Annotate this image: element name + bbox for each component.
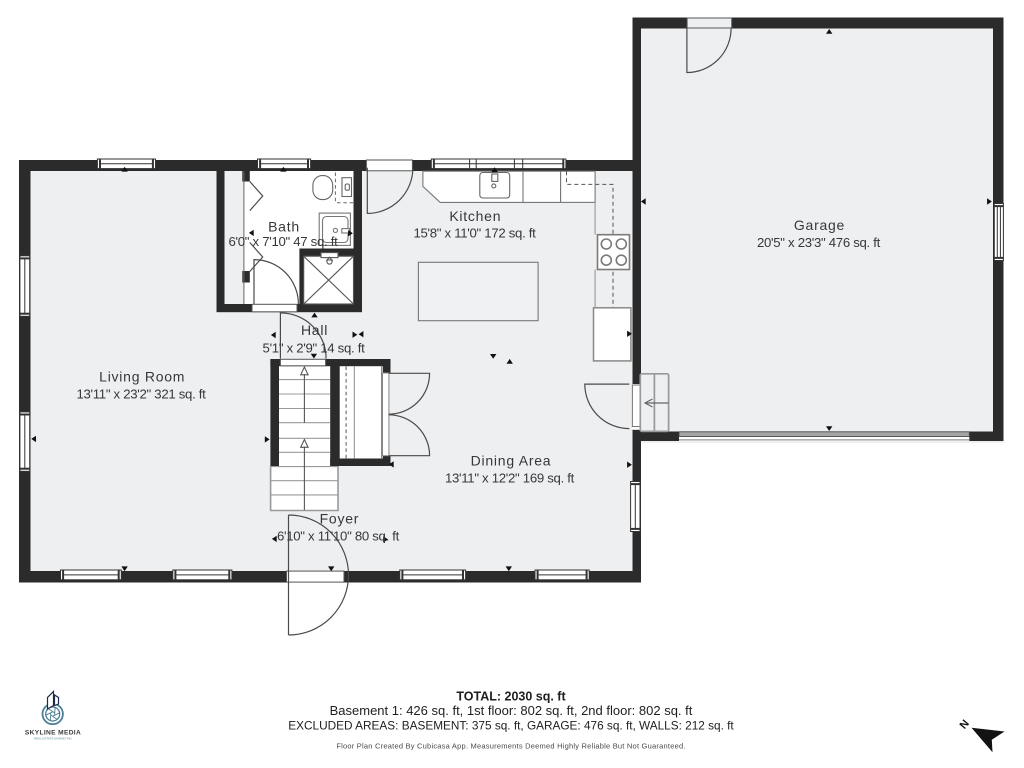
svg-text:6'10" x 11'10" 80 sq. ft: 6'10" x 11'10" 80 sq. ft bbox=[277, 529, 400, 544]
svg-text:Dining Area: Dining Area bbox=[471, 453, 552, 469]
svg-text:20'5" x 23'3" 476 sq. ft: 20'5" x 23'3" 476 sq. ft bbox=[757, 235, 881, 250]
svg-text:5'1" x 2'9" 14 sq. ft: 5'1" x 2'9" 14 sq. ft bbox=[263, 341, 366, 356]
svg-text:TOTAL: 2030 sq. ft: TOTAL: 2030 sq. ft bbox=[456, 690, 566, 704]
svg-text:15'8" x 11'0" 172 sq. ft: 15'8" x 11'0" 172 sq. ft bbox=[413, 226, 536, 241]
svg-text:Kitchen: Kitchen bbox=[449, 208, 501, 224]
svg-text:Floor Plan Created By Cubicasa: Floor Plan Created By Cubicasa App. Meas… bbox=[336, 742, 685, 751]
svg-text:Foyer: Foyer bbox=[320, 511, 360, 527]
svg-text:Hall: Hall bbox=[301, 322, 328, 338]
svg-text:EXCLUDED AREAS: BASEMENT: 375: EXCLUDED AREAS: BASEMENT: 375 sq. ft, GA… bbox=[288, 718, 734, 732]
svg-text:6'0" x 7'10" 47 sq. ft: 6'0" x 7'10" 47 sq. ft bbox=[229, 234, 339, 249]
svg-text:Basement 1: 426 sq. ft, 1st fl: Basement 1: 426 sq. ft, 1st floor: 802 s… bbox=[330, 703, 693, 718]
svg-text:Bath: Bath bbox=[268, 219, 300, 235]
svg-text:13'11" x 23'2" 321 sq. ft: 13'11" x 23'2" 321 sq. ft bbox=[76, 386, 206, 401]
svg-text:Garage: Garage bbox=[794, 217, 845, 233]
svg-text:REAL ESTATE MARKETING: REAL ESTATE MARKETING bbox=[34, 736, 72, 740]
svg-text:Living Room: Living Room bbox=[99, 368, 185, 384]
svg-text:13'11" x 12'2" 169 sq. ft: 13'11" x 12'2" 169 sq. ft bbox=[445, 471, 575, 486]
